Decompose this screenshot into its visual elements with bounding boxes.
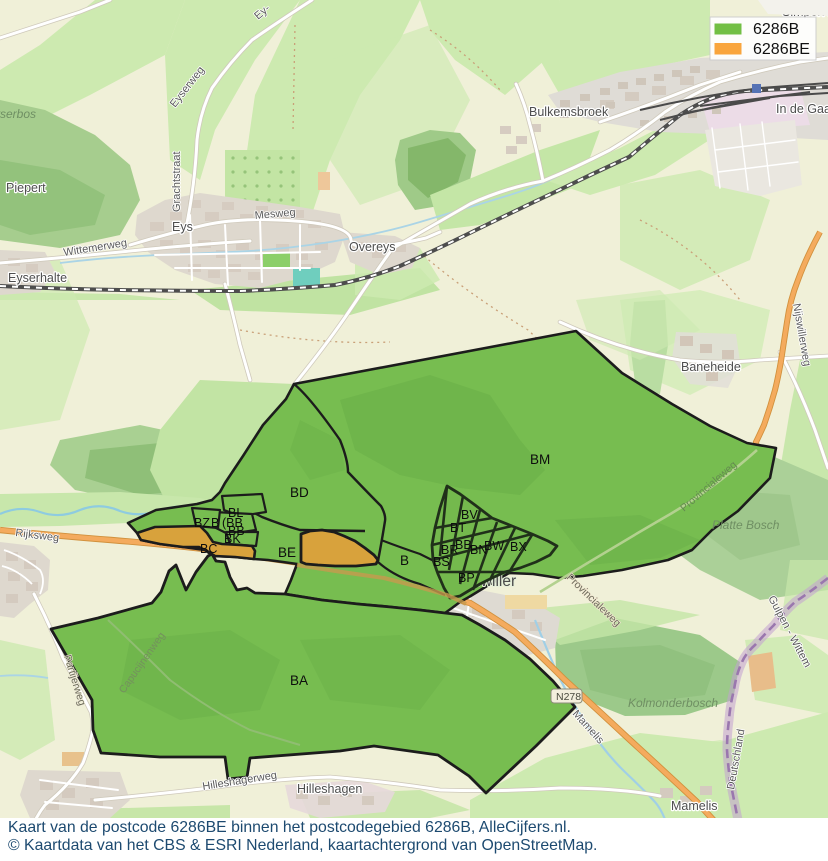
- svg-text:Mamelis: Mamelis: [671, 799, 718, 813]
- svg-text:Eys: Eys: [172, 220, 193, 234]
- svg-text:BW: BW: [484, 539, 504, 553]
- svg-text:6286BE: 6286BE: [753, 41, 810, 58]
- svg-text:BM: BM: [530, 452, 550, 467]
- svg-text:Overeys: Overeys: [349, 240, 396, 254]
- svg-text:BX: BX: [510, 540, 527, 554]
- svg-text:Eyserhalte: Eyserhalte: [8, 271, 67, 285]
- svg-text:BE: BE: [278, 545, 296, 560]
- svg-text:Eyserbos: Eyserbos: [0, 107, 36, 121]
- svg-text:BA: BA: [290, 673, 308, 688]
- svg-text:BC: BC: [200, 542, 217, 556]
- svg-text:Hilleshagen: Hilleshagen: [297, 782, 362, 796]
- svg-text:BD: BD: [290, 485, 309, 500]
- svg-text:Piepert: Piepert: [6, 181, 46, 195]
- svg-text:N278: N278: [556, 691, 581, 703]
- svg-text:Bulkemsbroek: Bulkemsbroek: [529, 105, 609, 119]
- svg-text:Baneheide: Baneheide: [681, 360, 741, 374]
- svg-text:BS: BS: [433, 555, 450, 569]
- svg-text:Platte Bosch: Platte Bosch: [712, 518, 780, 532]
- svg-text:B: B: [211, 516, 219, 530]
- svg-text:BP: BP: [458, 571, 475, 585]
- svg-text:BZ: BZ: [194, 516, 210, 530]
- svg-text:BT: BT: [450, 521, 466, 535]
- svg-text:B: B: [400, 553, 409, 568]
- svg-text:Grachtstraat: Grachtstraat: [171, 151, 183, 212]
- svg-text:BV: BV: [461, 508, 478, 522]
- svg-text:In de Gaard: In de Gaard: [776, 102, 828, 116]
- svg-text:Kolmonderbosch: Kolmonderbosch: [628, 696, 718, 710]
- svg-text:6286B: 6286B: [753, 21, 799, 38]
- svg-text:BK: BK: [224, 532, 241, 546]
